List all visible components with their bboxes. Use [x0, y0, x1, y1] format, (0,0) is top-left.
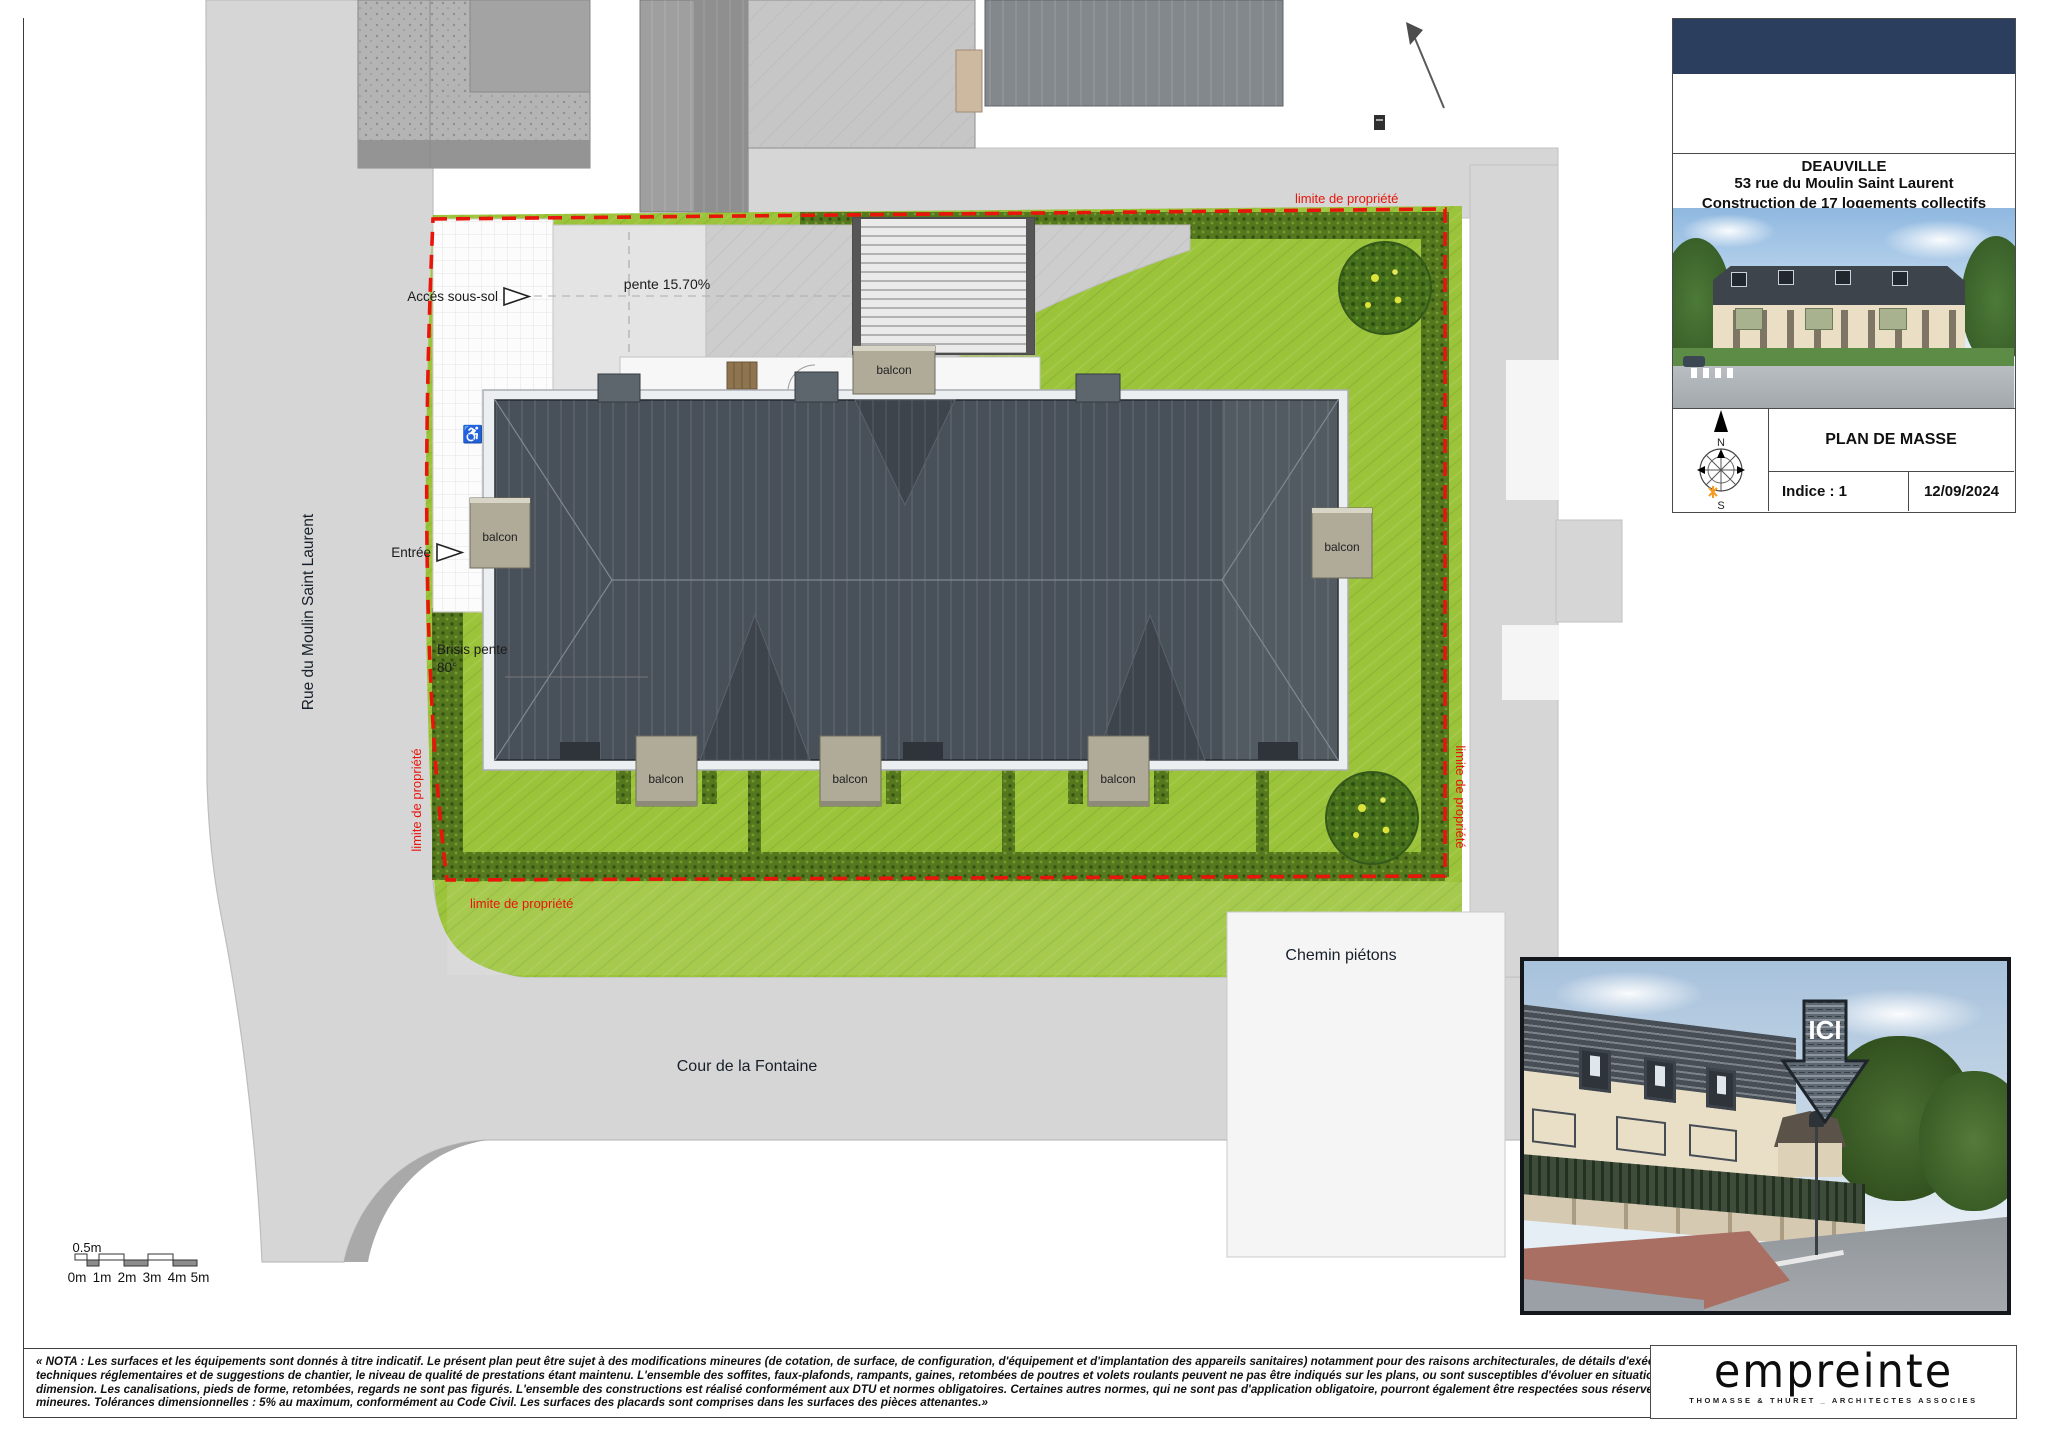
svg-text:balcon: balcon: [1324, 540, 1359, 554]
compass-rose-icon: N S: [1673, 408, 1768, 511]
title-block-empty-row: [1673, 74, 2015, 154]
title-cells: PLAN DE MASSE Indice : 1 12/09/2024: [1768, 408, 2014, 511]
svg-text:0m: 0m: [68, 1270, 87, 1285]
balcony-rail: [1689, 1124, 1737, 1162]
road-right-strip: [1470, 165, 1558, 977]
balcony-south-2: balcon: [820, 736, 881, 806]
nota-line-4: mineures. Tolérances dimensionnelles : 5…: [36, 1396, 1642, 1410]
basement-access-label: Accés sous-sol: [407, 289, 498, 304]
svg-text:N: N: [1717, 437, 1725, 449]
scale-bar: 0.5m 0m 1m 2m 3m 4m 5m: [68, 1240, 210, 1285]
bush-tree-north: [1339, 242, 1431, 334]
brisis-label-1: Brisis pente: [437, 642, 508, 657]
sun-icon: [1709, 486, 1717, 498]
svg-text:3m: 3m: [143, 1270, 162, 1285]
entrance-label: Entrée: [391, 545, 431, 560]
ici-label: ICI: [1808, 1015, 1841, 1045]
balcony-north: balcon: [853, 346, 935, 394]
balcony-south-3: balcon: [1088, 736, 1149, 806]
sheet-left-border: [23, 18, 24, 1348]
project-address: 53 rue du Moulin Saint Laurent: [1673, 175, 2015, 192]
project-rendering-image: [1673, 208, 2015, 409]
small-house: [1778, 1143, 1842, 1177]
svg-text:S: S: [1717, 500, 1724, 511]
svg-text:5m: 5m: [191, 1270, 210, 1285]
svg-text:balcon: balcon: [876, 363, 911, 377]
bush-tree-south: [1326, 772, 1418, 864]
svg-text:1m: 1m: [93, 1270, 112, 1285]
road-notch-2: [1502, 625, 1559, 700]
balcony-east: balcon: [1312, 508, 1372, 578]
document-date: 12/09/2024: [1909, 471, 2014, 511]
brisis-label-2: 80°: [437, 660, 457, 675]
revision-index: Indice : 1: [1768, 471, 1909, 511]
cloud: [1554, 971, 1704, 1016]
nota-line-3: dimension. Les canalisations, pieds de f…: [36, 1383, 1642, 1397]
wheelchair-icon: ♿: [462, 424, 483, 444]
document-title: PLAN DE MASSE: [1768, 408, 2014, 472]
limit-label-left: limite de propriété: [409, 748, 424, 851]
dormer-window: [1706, 1067, 1736, 1111]
dormer: [1778, 270, 1794, 285]
compass-cell: N S: [1673, 408, 1769, 511]
slope-label: pente 15.70%: [624, 276, 710, 292]
street-lamp-icon: [1406, 22, 1444, 108]
small-sign-icon: [1374, 115, 1385, 130]
nota-line-1: « NOTA : Les surfaces et les équipements…: [36, 1355, 1642, 1369]
road-notch-1: [1506, 360, 1559, 500]
lamp-post-icon: [1815, 1123, 1818, 1255]
architect-logo: empreinte: [1651, 1347, 2016, 1397]
dormer-window: [1644, 1057, 1676, 1103]
title-block-footer: N S PLAN DE MASSE Indice : 1 12/09/2024: [1673, 408, 2015, 511]
limit-label-top: limite de propriété: [1295, 191, 1398, 206]
svg-text:balcon: balcon: [482, 530, 517, 544]
svg-text:balcon: balcon: [1100, 772, 1135, 786]
balcony: [1879, 308, 1907, 330]
svg-text:balcon: balcon: [648, 772, 683, 786]
svg-text:2m: 2m: [118, 1270, 137, 1285]
road-right-bump: [1556, 520, 1622, 622]
main-building: [483, 372, 1348, 770]
dormer-window: [1579, 1047, 1611, 1093]
street-name-left: Rue du Moulin Saint Laurent: [300, 513, 317, 710]
balcony-south-1: balcon: [636, 736, 697, 806]
street-name-bottom: Cour de la Fontaine: [677, 1058, 818, 1075]
title-block-banner: [1673, 19, 2015, 75]
title-block: DEAUVILLE 53 rue du Moulin Saint Laurent…: [1672, 18, 2016, 513]
exterior-stairs: [853, 218, 1034, 354]
balcony: [1805, 308, 1833, 330]
location-photo-inset: ICI: [1520, 957, 2011, 1315]
car: [1683, 356, 1705, 367]
dormer: [1835, 270, 1851, 285]
limit-label-right: limite de propriété: [1453, 745, 1468, 848]
balcony-rail: [1616, 1116, 1666, 1156]
architect-logo-box: empreinte THOMASSE & THURET _ ARCHITECTE…: [1650, 1345, 2017, 1419]
limit-label-bottom: limite de propriété: [470, 896, 573, 911]
plan-de-masse-sheet: ♿ balcon balcon balcon balcon ba: [0, 0, 2048, 1447]
project-identification: DEAUVILLE 53 rue du Moulin Saint Laurent…: [1673, 153, 2015, 209]
ici-arrow-icon: ICI: [1779, 997, 1871, 1127]
balcony-west: balcon: [470, 498, 530, 568]
svg-text:balcon: balcon: [832, 772, 867, 786]
project-city: DEAUVILLE: [1673, 158, 2015, 175]
dormer: [1731, 272, 1747, 287]
scale-half-label: 0.5m: [73, 1240, 102, 1255]
tree: [1919, 1071, 2011, 1211]
nota-disclaimer: « NOTA : Les surfaces et les équipements…: [23, 1348, 1655, 1418]
footpath-label: Chemin piétons: [1285, 947, 1396, 964]
svg-text:4m: 4m: [168, 1270, 187, 1285]
dormer: [1892, 271, 1908, 286]
nota-line-2: techniques réglementaires et de suggesti…: [36, 1369, 1642, 1383]
balcony-rail: [1532, 1108, 1576, 1147]
crosswalk: [1691, 368, 1737, 378]
balcony: [1735, 308, 1763, 330]
